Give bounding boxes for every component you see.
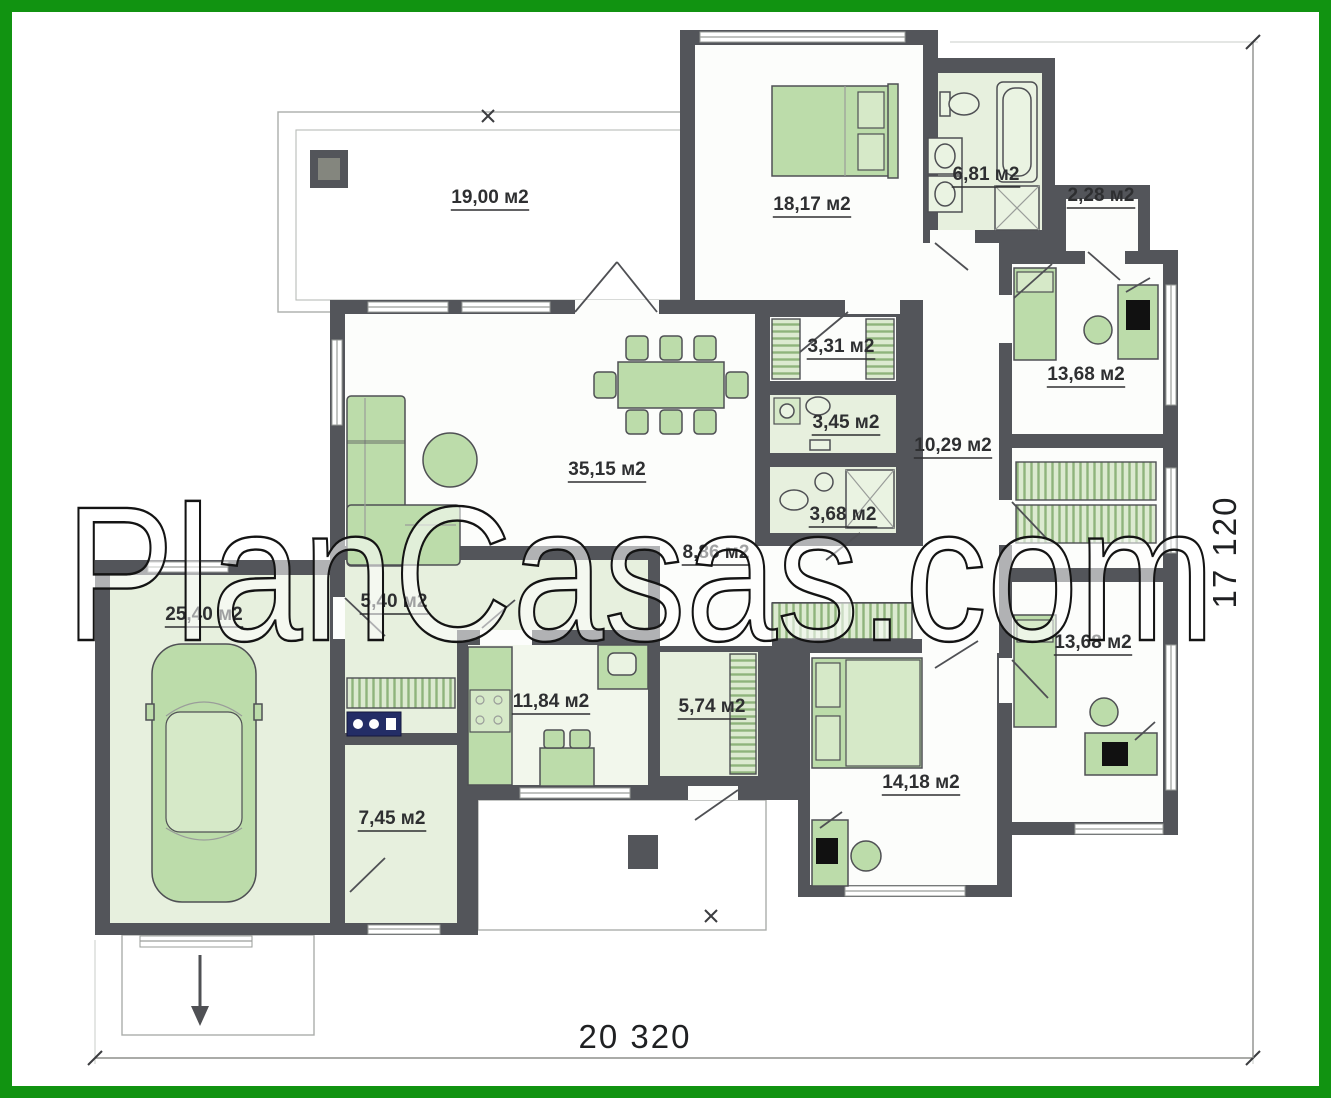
room-label-bathroom-main: 6,81 м2 — [953, 164, 1020, 185]
porch-pillar — [628, 835, 658, 869]
room-label-wc: 3,45 м2 — [813, 412, 880, 433]
room-label-bedroom-top: 18,17 м2 — [773, 194, 850, 215]
room-label-bedroom-right-top: 13,68 м2 — [1047, 364, 1124, 385]
room-label-closet: 3,31 м2 — [808, 336, 875, 357]
shower-main — [995, 186, 1039, 230]
room-label-kitchen: 11,84 м2 — [513, 691, 589, 712]
car — [146, 644, 262, 902]
mudroom-shelf — [347, 678, 455, 708]
dimension-width-label: 20 320 — [579, 1018, 692, 1055]
bed-top — [772, 84, 898, 178]
rear-porch-outline — [478, 800, 766, 930]
dimension-height-label: 17 120 — [1206, 496, 1243, 609]
floor-plan-drawing: 19,00 м218,17 м26,81 м22,28 м213,68 м23,… — [12, 12, 1319, 1086]
floor-plan-page: 19,00 м218,17 м26,81 м22,28 м213,68 м23,… — [0, 0, 1331, 1098]
watermark-text: PlanCasas.com — [65, 466, 1215, 681]
room-label-storage: 2,28 м2 — [1068, 185, 1135, 206]
terrace-outline — [278, 110, 702, 312]
driveway — [122, 935, 314, 1035]
room-storage — [1066, 199, 1138, 251]
room-label-hallway: 10,29 м2 — [914, 435, 991, 456]
bed-right-top — [1014, 268, 1056, 360]
toilet-main — [940, 92, 979, 116]
washing-machine — [347, 712, 401, 736]
room-label-wardrobe: 5,74 м2 — [679, 696, 746, 717]
room-label-bedroom-bottom: 14,18 м2 — [882, 772, 959, 793]
room-label-boiler-room: 7,45 м2 — [359, 808, 426, 829]
closet-shelf-left — [772, 319, 800, 379]
room-boiler — [345, 745, 457, 923]
room-label-terrace: 19,00 м2 — [451, 187, 528, 208]
